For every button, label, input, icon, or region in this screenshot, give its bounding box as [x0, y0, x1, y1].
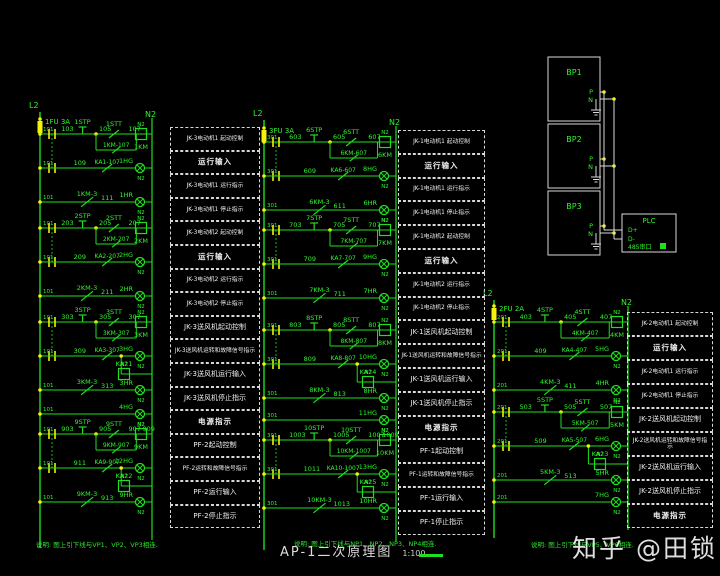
svg-text:5STT: 5STT	[574, 398, 590, 406]
signal-label-box: JK-1电动机2 运行指示	[398, 273, 485, 297]
svg-text:403: 403	[519, 313, 531, 321]
svg-text:BP2: BP2	[566, 135, 581, 144]
svg-text:709: 709	[304, 255, 316, 263]
svg-text:513: 513	[564, 472, 576, 480]
svg-text:703: 703	[289, 221, 301, 229]
svg-text:109: 109	[74, 159, 86, 167]
signal-label-box: JK-3电动机2 停止指示	[170, 292, 260, 316]
signal-label-box: PF-1起动控制	[398, 439, 485, 463]
svg-text:9HR: 9HR	[119, 491, 133, 499]
signal-label-box: JK-1电动机2 起动控制	[398, 225, 485, 249]
svg-text:301: 301	[267, 291, 278, 297]
svg-text:5KM-3: 5KM-3	[540, 468, 561, 476]
signal-label-box: JK-1送风机起动控制	[398, 320, 485, 344]
svg-text:N: N	[588, 163, 593, 171]
svg-text:3HG: 3HG	[119, 345, 133, 353]
svg-text:PLC: PLC	[642, 217, 655, 225]
svg-text:N2: N2	[613, 454, 621, 460]
svg-text:301: 301	[267, 467, 278, 473]
svg-text:10STP: 10STP	[304, 424, 324, 432]
svg-text:N2: N2	[613, 400, 621, 406]
svg-text:5HR: 5HR	[595, 469, 609, 477]
svg-text:8KM-3: 8KM-3	[309, 386, 330, 394]
svg-text:10KM-3: 10KM-3	[307, 496, 332, 504]
signal-label-box: JK-1电动机1 运行指示	[398, 178, 485, 202]
svg-text:111: 111	[101, 194, 113, 202]
svg-text:6HG: 6HG	[595, 435, 609, 443]
circuit-column-2: L2N23FU 3A3016036STP6056STT607N26KM6KM-6…	[253, 109, 400, 550]
signal-label-column-jk1: JK-1电动机1 起动控制运行输入JK-1电动机1 运行指示JK-1电动机1 停…	[398, 130, 485, 535]
svg-text:2STT: 2STT	[106, 214, 122, 222]
svg-text:KA10-1007: KA10-1007	[327, 465, 360, 472]
svg-text:301: 301	[267, 391, 278, 397]
svg-text:313: 313	[101, 382, 113, 390]
signal-label-box: JK-3送风机运转和故障信号指示	[170, 339, 260, 363]
svg-text:813: 813	[333, 390, 345, 398]
svg-text:N2: N2	[137, 510, 145, 516]
svg-text:101: 101	[43, 255, 54, 261]
signal-label-box: JK-3电动机2 运行指示	[170, 269, 260, 293]
bp-plc-panel: BP1PNBP2PNBP3PNPLCD+D-485串口	[548, 57, 676, 255]
svg-text:3KM-307: 3KM-307	[103, 330, 130, 337]
signal-label-box: PF-2运行输入	[170, 481, 260, 505]
svg-text:7KM-3: 7KM-3	[309, 286, 330, 294]
svg-text:6KM: 6KM	[378, 151, 392, 159]
signal-label-box: PF-1运转和故障信号指示	[398, 463, 485, 487]
svg-text:N2: N2	[381, 482, 389, 488]
svg-text:203: 203	[61, 219, 73, 227]
svg-text:209: 209	[74, 253, 86, 261]
svg-text:2STP: 2STP	[74, 212, 90, 220]
scale-bar	[419, 554, 443, 557]
svg-text:KA7-707: KA7-707	[331, 255, 357, 262]
svg-text:6STP: 6STP	[306, 126, 322, 134]
signal-label-box: PF-2运转和故障信号指示	[170, 457, 260, 481]
signal-label-box: 运行输入	[170, 151, 260, 175]
svg-text:L2: L2	[253, 109, 263, 118]
signal-label-box: JK-3电动机1 停止指示	[170, 198, 260, 222]
svg-text:607: 607	[368, 133, 380, 141]
svg-text:N2: N2	[381, 184, 389, 190]
svg-text:7KM: 7KM	[378, 239, 392, 247]
svg-text:9KM-907: 9KM-907	[103, 442, 130, 449]
svg-text:1KM-107: 1KM-107	[103, 142, 130, 149]
svg-text:L2: L2	[29, 101, 39, 110]
signal-label-box: JK-2电动机1 起动控制	[627, 312, 713, 336]
svg-text:201: 201	[497, 473, 508, 479]
svg-text:N2: N2	[137, 476, 145, 482]
svg-text:609: 609	[304, 167, 316, 175]
svg-text:N2: N2	[137, 176, 145, 182]
svg-text:4KM: 4KM	[610, 331, 624, 339]
svg-text:8STP: 8STP	[306, 314, 322, 322]
svg-text:807: 807	[368, 321, 380, 329]
svg-text:N2: N2	[613, 510, 621, 516]
svg-text:101: 101	[43, 195, 54, 201]
svg-text:711: 711	[333, 290, 345, 298]
signal-label-box: JK-2送风机起动控制	[627, 408, 713, 432]
zhihu-watermark: 知乎 @田锁	[572, 529, 717, 565]
svg-text:101: 101	[43, 461, 54, 467]
svg-text:101: 101	[43, 383, 54, 389]
svg-text:N2: N2	[381, 218, 389, 224]
svg-text:1HR: 1HR	[119, 191, 133, 199]
signal-label-box: PF-2停止指示	[170, 505, 260, 529]
circuit-diagram: L2N21FU 3A1011031STP1051STT107N21KM1KM-1…	[0, 0, 720, 576]
svg-text:9HG: 9HG	[363, 253, 377, 261]
svg-text:6STT: 6STT	[343, 128, 359, 136]
svg-text:10KM-1007: 10KM-1007	[337, 448, 371, 455]
svg-text:4HG: 4HG	[119, 403, 133, 411]
signal-label-box: JK-3送风机运行输入	[170, 363, 260, 387]
svg-text:N2: N2	[137, 270, 145, 276]
signal-label-box: JK-2电动机1 停止指示	[627, 384, 713, 408]
svg-text:301: 301	[267, 357, 278, 363]
svg-text:1003: 1003	[289, 431, 306, 439]
svg-text:N2: N2	[381, 516, 389, 522]
signal-label-box: JK-2送风机停止指示	[627, 480, 713, 504]
svg-text:2HR: 2HR	[119, 285, 133, 293]
signal-label-box: 运行输入	[398, 249, 485, 273]
circuit-column-3: L2N22FU 2A2014034STP4054STT407N24KM4KM-4…	[483, 289, 632, 538]
signal-label-box: 运行输入	[398, 154, 485, 178]
svg-text:N: N	[588, 230, 593, 238]
svg-text:603: 603	[289, 133, 301, 141]
svg-text:4KM-3: 4KM-3	[540, 378, 561, 386]
svg-text:10STT: 10STT	[341, 426, 361, 434]
svg-text:2FU 2A: 2FU 2A	[499, 305, 524, 313]
svg-text:103: 103	[61, 125, 73, 133]
svg-text:2HG: 2HG	[119, 251, 133, 259]
svg-text:4HR: 4HR	[595, 379, 609, 387]
svg-text:N2: N2	[389, 118, 400, 127]
svg-text:411: 411	[564, 382, 576, 390]
svg-text:101: 101	[43, 289, 54, 295]
svg-text:485串口: 485串口	[628, 243, 651, 251]
svg-text:KA5-507: KA5-507	[562, 437, 588, 444]
svg-text:N2: N2	[145, 110, 156, 119]
svg-text:201: 201	[497, 383, 508, 389]
svg-text:KA3-307: KA3-307	[95, 347, 121, 354]
svg-text:P: P	[589, 222, 593, 230]
svg-text:N2: N2	[137, 364, 145, 370]
svg-text:1HG: 1HG	[119, 157, 133, 165]
svg-text:N2: N2	[381, 272, 389, 278]
svg-text:N2: N2	[613, 488, 621, 494]
title-block: AP-1二次原理图1:100	[280, 541, 425, 560]
svg-text:KA22: KA22	[116, 472, 133, 480]
signal-label-column-jk2: JK-2电动机1 起动控制运行输入JK-2电动机1 运行指示JK-2电动机1 停…	[627, 312, 713, 528]
svg-text:101: 101	[43, 161, 54, 167]
svg-text:7HG: 7HG	[595, 491, 609, 499]
signal-label-box: JK-1送风机运行输入	[398, 368, 485, 392]
signal-label-box: PF-1运行输入	[398, 487, 485, 511]
svg-text:N2: N2	[137, 216, 145, 222]
signal-label-box: JK-1电动机2 停止指示	[398, 297, 485, 321]
signal-label-box: JK-1送风机停止指示	[398, 392, 485, 416]
svg-text:8HR: 8HR	[363, 387, 377, 395]
svg-text:5KM-507: 5KM-507	[572, 420, 599, 427]
svg-text:KA4-407: KA4-407	[562, 347, 588, 354]
svg-text:KA6-607: KA6-607	[331, 167, 357, 174]
svg-text:309: 309	[74, 347, 86, 355]
svg-text:KA2-207: KA2-207	[95, 253, 121, 260]
svg-text:5KM: 5KM	[610, 421, 624, 429]
svg-text:1STP: 1STP	[74, 118, 90, 126]
svg-text:9STP: 9STP	[74, 418, 90, 426]
svg-text:809: 809	[304, 355, 316, 363]
svg-text:N2: N2	[613, 310, 621, 316]
signal-label-box: 电源指示	[398, 416, 485, 440]
svg-text:3STP: 3STP	[74, 306, 90, 314]
svg-text:P: P	[589, 155, 593, 163]
svg-text:1KM-3: 1KM-3	[77, 190, 98, 198]
svg-text:BP3: BP3	[566, 202, 581, 211]
svg-text:7STT: 7STT	[343, 216, 359, 224]
svg-text:N2: N2	[381, 306, 389, 312]
svg-text:N2: N2	[613, 364, 621, 370]
signal-label-box: JK-3电动机1 起动控制	[170, 127, 260, 151]
svg-text:8HG: 8HG	[363, 165, 377, 173]
signal-label-box: JK-3电动机2 起动控制	[170, 221, 260, 245]
svg-text:D+: D+	[628, 227, 638, 234]
svg-text:803: 803	[289, 321, 301, 329]
drawing-title: AP-1二次原理图	[280, 545, 392, 560]
svg-text:303: 303	[61, 313, 73, 321]
svg-text:8KM-807: 8KM-807	[340, 338, 367, 345]
svg-text:5STP: 5STP	[537, 396, 553, 404]
svg-text:903: 903	[61, 425, 73, 433]
svg-text:4STT: 4STT	[574, 308, 590, 316]
svg-text:N2: N2	[621, 298, 632, 307]
svg-text:911: 911	[74, 459, 86, 467]
svg-text:1011: 1011	[304, 465, 321, 473]
svg-text:101: 101	[43, 495, 54, 501]
svg-text:12HG: 12HG	[115, 457, 133, 465]
svg-text:8KM: 8KM	[378, 339, 392, 347]
svg-text:3KM-3: 3KM-3	[77, 378, 98, 386]
svg-text:611: 611	[333, 202, 345, 210]
svg-text:101: 101	[43, 349, 54, 355]
svg-text:407: 407	[600, 313, 612, 321]
svg-text:2KM-207: 2KM-207	[103, 236, 130, 243]
signal-label-column-jk3: JK-3电动机1 起动控制运行输入JK-3电动机1 运行指示JK-3电动机1 停…	[170, 127, 260, 528]
svg-text:N2: N2	[381, 406, 389, 412]
svg-text:N2: N2	[137, 122, 145, 128]
svg-text:N2: N2	[137, 310, 145, 316]
svg-text:9STT: 9STT	[106, 420, 122, 428]
svg-text:N2: N2	[137, 398, 145, 404]
svg-text:201: 201	[497, 349, 508, 355]
svg-text:N2: N2	[381, 318, 389, 324]
svg-text:4STP: 4STP	[537, 306, 553, 314]
signal-label-box: JK-1送风机运转和故障信号指示	[398, 344, 485, 368]
svg-text:N2: N2	[137, 422, 145, 428]
circuit-column-1: L2N21FU 3A1011031STP1051STT107N21KM1KM-1…	[29, 101, 156, 548]
svg-text:301: 301	[267, 413, 278, 419]
svg-text:1013: 1013	[333, 500, 350, 508]
svg-text:6KM-3: 6KM-3	[309, 198, 330, 206]
signal-label-box: JK-2电动机1 运行指示	[627, 360, 713, 384]
signal-label-box: JK-1电动机1 起动控制	[398, 130, 485, 154]
svg-text:9KM-3: 9KM-3	[77, 490, 98, 498]
svg-text:301: 301	[267, 203, 278, 209]
signal-label-box: 电源指示	[627, 504, 713, 528]
svg-text:913: 913	[101, 494, 113, 502]
signal-label-box: 电源指示	[170, 410, 260, 434]
svg-text:KA24: KA24	[360, 368, 377, 376]
svg-text:301: 301	[267, 501, 278, 507]
signal-label-box: JK-3电动机1 运行指示	[170, 174, 260, 198]
svg-text:13HG: 13HG	[359, 463, 377, 471]
svg-text:KA8-807: KA8-807	[331, 355, 357, 362]
svg-text:KA23: KA23	[592, 450, 609, 458]
svg-text:6HR: 6HR	[363, 199, 377, 207]
svg-text:503: 503	[519, 403, 531, 411]
signal-label-box: PF-2起动控制	[170, 434, 260, 458]
svg-text:10KM: 10KM	[376, 449, 394, 457]
svg-text:301: 301	[267, 169, 278, 175]
svg-text:7KM-707: 7KM-707	[340, 238, 367, 245]
svg-text:3HR: 3HR	[119, 379, 133, 387]
svg-text:2KM-3: 2KM-3	[77, 284, 98, 292]
signal-label-box: JK-2送风机运转和故障信号指示	[627, 432, 713, 456]
svg-text:7STP: 7STP	[306, 214, 322, 222]
signal-label-box: 运行输入	[627, 336, 713, 360]
svg-text:N: N	[588, 96, 593, 104]
svg-text:6KM-607: 6KM-607	[340, 150, 367, 157]
svg-text:KA1-107: KA1-107	[95, 159, 121, 166]
signal-label-box: JK-2送风机运行输入	[627, 456, 713, 480]
svg-text:4KM-407: 4KM-407	[572, 330, 599, 337]
svg-text:10HG: 10HG	[359, 353, 377, 361]
signal-label-box: JK-3送风机停止指示	[170, 387, 260, 411]
svg-text:N2: N2	[381, 372, 389, 378]
svg-text:BP1: BP1	[566, 68, 581, 77]
svg-text:5HG: 5HG	[595, 345, 609, 353]
svg-text:509: 509	[534, 437, 546, 445]
svg-text:N2: N2	[381, 428, 389, 434]
cad-drawing-canvas: L2N21FU 3A1011031STP1051STT107N21KM1KM-1…	[0, 0, 720, 576]
svg-text:11HG: 11HG	[359, 409, 377, 417]
svg-text:10HR: 10HR	[359, 497, 377, 505]
note-left: 说明: 图上引下线与VP1、VP2、VP3相连.	[36, 539, 158, 549]
svg-text:3STT: 3STT	[106, 308, 122, 316]
svg-text:8STT: 8STT	[343, 316, 359, 324]
svg-text:101: 101	[43, 407, 54, 413]
signal-label-box: 运行输入	[170, 245, 260, 269]
signal-label-box: PF-1停止指示	[398, 511, 485, 535]
signal-label-box: JK-3送风机起动控制	[170, 316, 260, 340]
svg-text:KA21: KA21	[116, 360, 133, 368]
svg-text:D-: D-	[628, 236, 635, 243]
svg-text:201: 201	[497, 495, 508, 501]
svg-text:KA25: KA25	[360, 478, 377, 486]
svg-text:211: 211	[101, 288, 113, 296]
svg-text:301: 301	[267, 257, 278, 263]
svg-text:P: P	[589, 88, 593, 96]
svg-text:409: 409	[534, 347, 546, 355]
svg-text:N2: N2	[381, 130, 389, 136]
signal-label-box: JK-1电动机1 停止指示	[398, 201, 485, 225]
svg-text:707: 707	[368, 221, 380, 229]
svg-text:507: 507	[600, 403, 612, 411]
svg-text:7HR: 7HR	[363, 287, 377, 295]
svg-text:1STT: 1STT	[106, 120, 122, 128]
svg-text:201: 201	[497, 439, 508, 445]
